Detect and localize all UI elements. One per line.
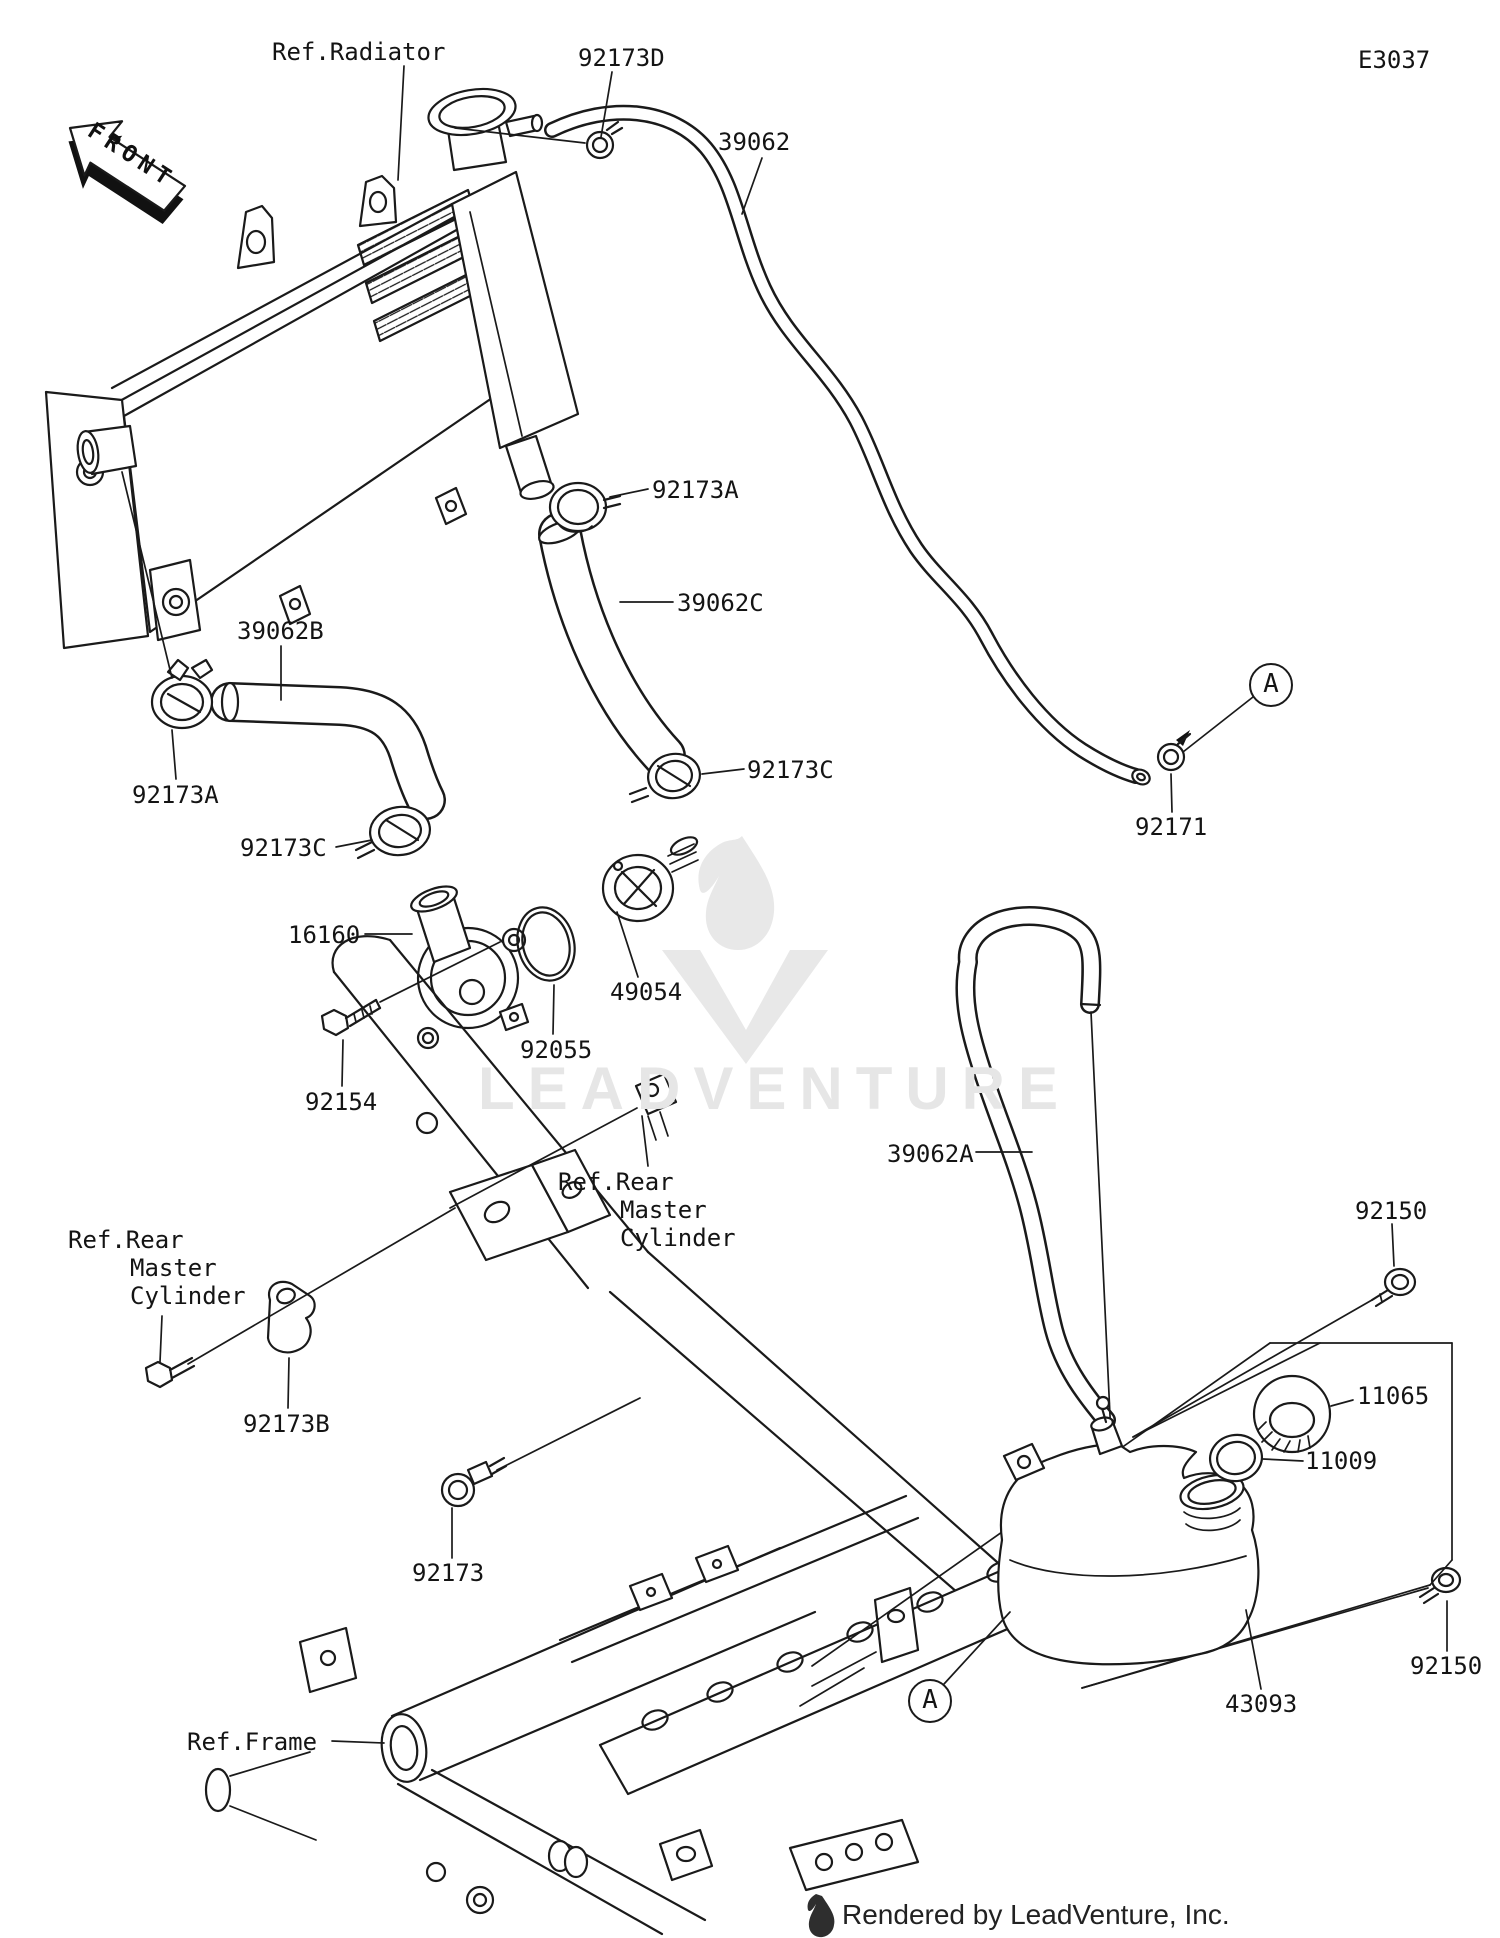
detail-marker-a-bottom: A — [908, 1679, 952, 1723]
label-ref-radiator: Ref.Radiator — [272, 38, 445, 66]
ref-rear-line1: Ref.Rear — [68, 1226, 246, 1254]
watermark-text: LEADVENTURE — [478, 1054, 1071, 1123]
label-92173c-left[interactable]: 92173C — [240, 834, 327, 862]
label-92173a-left[interactable]: 92173A — [132, 781, 219, 809]
credit-text: Rendered by LeadVenture, Inc. — [842, 1899, 1230, 1931]
ref-rear-line2: Master — [620, 1196, 736, 1224]
hose-39062-drawing — [552, 113, 1152, 787]
label-11065[interactable]: 11065 — [1357, 1382, 1429, 1410]
water-pump-16160-drawing — [408, 881, 528, 1048]
clamp-92173d-drawing — [587, 122, 622, 158]
reservoir-cap-11065-drawing — [1254, 1376, 1330, 1452]
label-39062b[interactable]: 39062B — [237, 617, 324, 645]
label-ref-rear-master-center: Ref.Rear Master Cylinder — [558, 1168, 736, 1252]
clamp-92173a-right-drawing — [550, 483, 620, 532]
diagram-canvas — [0, 0, 1500, 1938]
label-39062[interactable]: 39062 — [718, 128, 790, 156]
leadventure-credit-logo — [808, 1894, 835, 1937]
hose-39062c-drawing — [536, 516, 664, 756]
front-direction-arrow — [46, 99, 201, 237]
label-92173[interactable]: 92173 — [412, 1559, 484, 1587]
page-code: E3037 — [1358, 46, 1430, 74]
ref-rear-line3: Cylinder — [130, 1282, 246, 1310]
holder-92173b-drawing — [268, 1282, 315, 1352]
label-49054[interactable]: 49054 — [610, 978, 682, 1006]
label-92173a-right[interactable]: 92173A — [652, 476, 739, 504]
label-ref-frame: Ref.Frame — [187, 1728, 317, 1756]
label-39062a[interactable]: 39062A — [887, 1140, 974, 1168]
ref-rear-line1: Ref.Rear — [558, 1168, 736, 1196]
label-92150-bottom[interactable]: 92150 — [1410, 1652, 1482, 1680]
label-92173d[interactable]: 92173D — [578, 44, 665, 72]
label-43093[interactable]: 43093 — [1225, 1690, 1297, 1718]
ref-rear-line2: Master — [130, 1254, 246, 1282]
hose-39062a-drawing — [965, 916, 1112, 1458]
reservoir-tank-43093-drawing — [998, 1397, 1258, 1664]
bolt-92150-top-drawing — [1372, 1269, 1415, 1306]
label-16160[interactable]: 16160 — [288, 921, 360, 949]
label-39062c[interactable]: 39062C — [677, 589, 764, 617]
label-92171[interactable]: 92171 — [1135, 813, 1207, 841]
ref-rear-line3: Cylinder — [620, 1224, 736, 1252]
bolt-rear-master-left-drawing — [146, 1358, 194, 1387]
label-11009[interactable]: 11009 — [1305, 1447, 1377, 1475]
sensor-92173-drawing — [442, 1458, 506, 1506]
label-92154[interactable]: 92154 — [305, 1088, 377, 1116]
leadventure-watermark-logo — [662, 836, 828, 1064]
hose-39062b-drawing — [222, 683, 426, 800]
label-92150-top[interactable]: 92150 — [1355, 1197, 1427, 1225]
thermostat-49054-drawing — [603, 834, 700, 921]
label-92173c-right[interactable]: 92173C — [747, 756, 834, 784]
label-ref-rear-master-left: Ref.Rear Master Cylinder — [68, 1226, 246, 1310]
detail-marker-a-top: A — [1249, 663, 1293, 707]
parts-diagram-page: Ref.Radiator 92173D 39062 E3037 92173A 3… — [0, 0, 1500, 1938]
label-92173b[interactable]: 92173B — [243, 1410, 330, 1438]
clamp-92173a-left-drawing — [152, 660, 212, 728]
